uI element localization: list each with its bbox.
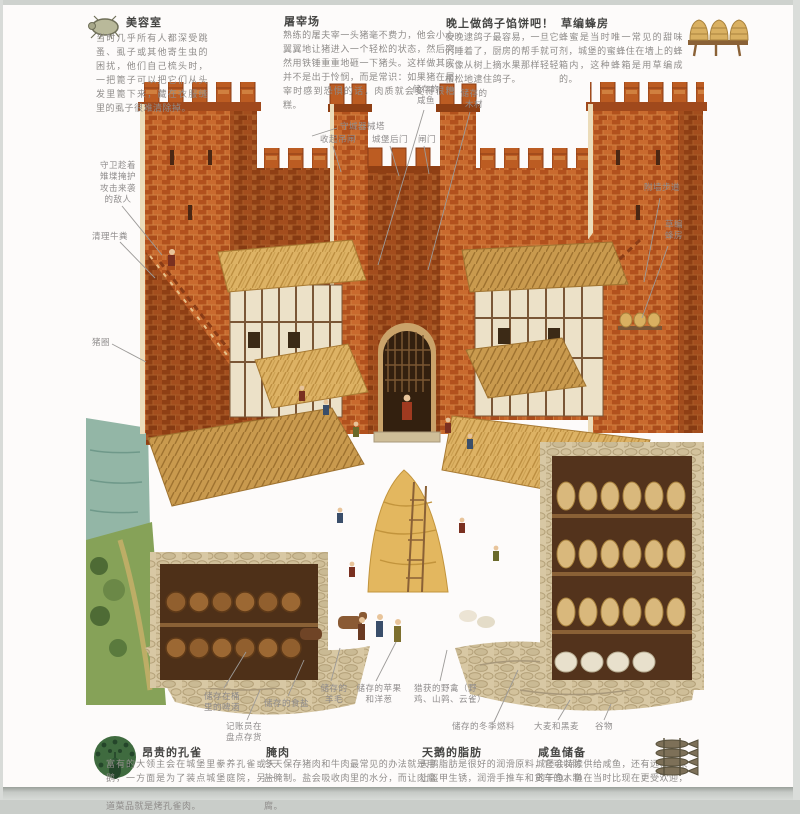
callout-game-birds: 猎获的野禽（野 鸡、山鹑、云雀）: [414, 683, 504, 706]
section-title-slaughter: 屠宰场: [284, 13, 320, 29]
callout-guards-battlements: 守卫趁着 雉堞掩护 攻击来袭 的敌人: [92, 160, 144, 206]
callout-straw-hives: 草编 蜂房: [656, 219, 692, 242]
callout-wall-walk: 附墙步道: [644, 182, 700, 193]
book-page: 美容室 当时几乎所有人都深受跳蚤、虱子或其他寄生虫的困扰，他们自己梳头时，一把篦…: [0, 0, 800, 800]
section-body-peacock: 富有的大领主会在城堡里豢养孔雀或天鹅，一方面是为了装点城堡庭院，另一方面是为了食…: [106, 758, 276, 814]
callout-winter-fuel: 储存的冬季燃料: [452, 721, 536, 732]
callout-pigsty: 猪圈: [92, 337, 132, 348]
fish-bundle-icon: [650, 736, 710, 780]
callout-barley-rye: 大麦和黑麦: [534, 721, 598, 732]
callout-siege-tower: 守城器械塔: [340, 121, 410, 132]
callout-gate: 闸门: [418, 134, 448, 145]
section-title-beehive: 草编蜂房: [561, 15, 609, 31]
section-title-pigeon-pie: 晚上做鸽子馅饼吧！: [446, 15, 554, 31]
callout-back-gate: 城堡后门: [372, 134, 424, 145]
section-body-pigeon-pie: 夜晚逮鸽子最容易，一旦它们睡着了，厨房的帮手就可以像从树上摘水果那样轻轻松松地逮…: [445, 31, 559, 87]
photo-edge-top: [0, 0, 800, 5]
callout-stored-wood: 储存的 木材: [452, 88, 496, 111]
callout-clerk-inventory: 记账员在 盘点存货: [218, 721, 270, 744]
beehives-icon: [686, 10, 750, 58]
photo-edge-right: [793, 0, 800, 800]
castle-cutaway-illustration: [0, 0, 800, 800]
straw-beehives: [618, 313, 662, 330]
callout-grain: 谷物: [595, 721, 625, 732]
callout-clearing-dung: 清理牛粪: [92, 231, 152, 242]
callout-raised-portcullis: 收起吊闸: [320, 134, 372, 145]
haystack: [368, 470, 448, 592]
callout-beer-barrels: 储存在桶 里的啤酒: [196, 691, 248, 714]
photo-edge-left: [0, 0, 3, 800]
callout-stored-apples-onions: 储存的苹果 和洋葱: [348, 683, 410, 706]
grain-storeroom: [540, 442, 704, 690]
section-body-beauty-room: 当时几乎所有人都深受跳蚤、虱子或其他寄生虫的困扰，他们自己梳头时，一把篦子可以把…: [96, 32, 208, 116]
wine-cellar: [150, 552, 328, 688]
section-title-beauty-room: 美容室: [126, 14, 162, 30]
photo-edge-bottom: [0, 787, 800, 800]
callout-stored-fish: 储存的 咸鱼: [404, 84, 448, 107]
section-body-salted-meat: 冬天保存猪肉和牛肉最常见的办法就是用盐腌制。盐会吸收肉里的水分，而让肉腐烂的微生…: [264, 758, 436, 814]
section-body-beehive: 蜂蜜是当时唯一常见的甜味剂，城堡的蜜蜂住在墙上的蜂箱内，这种蜂箱是用草编成的。: [559, 31, 683, 87]
